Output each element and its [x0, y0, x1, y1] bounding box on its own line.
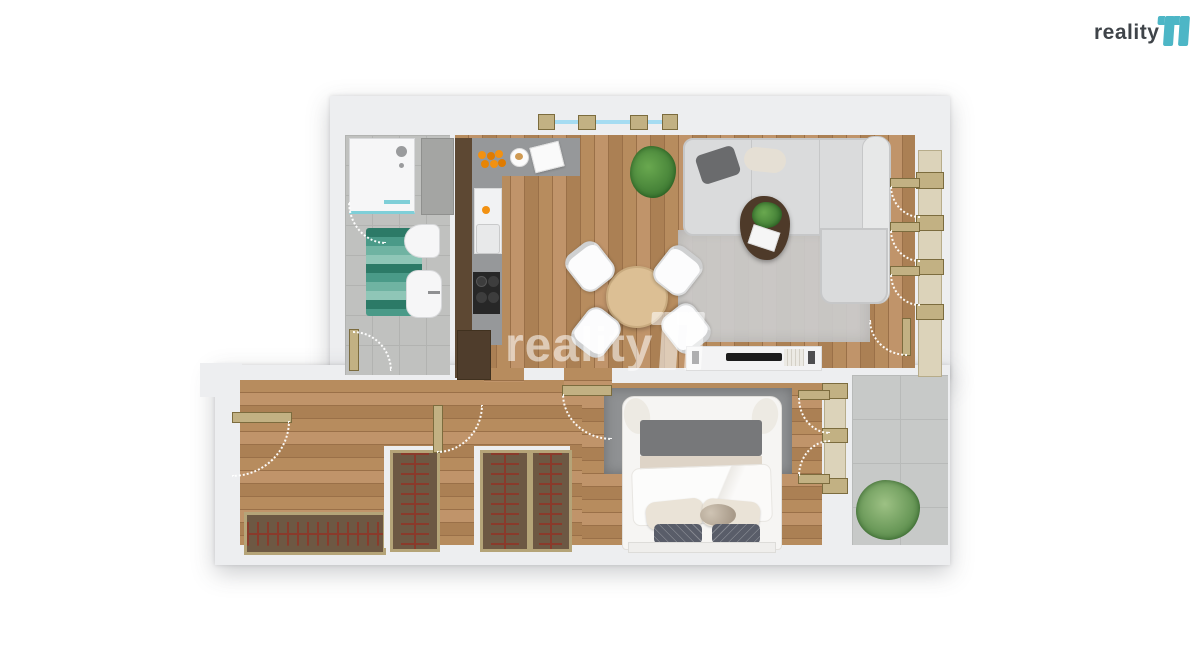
brand-logo-text: reality: [1094, 22, 1159, 43]
facade-frame-block: [916, 215, 944, 231]
bedroom-doorway-threshold: [564, 368, 612, 385]
facade-frame-block: [916, 259, 944, 275]
window-frame-block: [538, 114, 555, 130]
window-frame-block: [662, 114, 678, 130]
bed-headboard: [628, 542, 776, 553]
toilet: [404, 224, 440, 258]
built-in-wardrobe: [480, 450, 530, 552]
window-glass: [542, 120, 672, 124]
bed-accent-pillow: [712, 524, 760, 544]
brand-logo-mark-bar-2: [1178, 16, 1190, 46]
tv-icon: [726, 353, 782, 361]
kitchen-sink: [476, 224, 500, 254]
facade-frame-block: [916, 172, 944, 189]
wall-step-left: [200, 363, 242, 397]
floorplan-canvas: reality reality: [0, 0, 1200, 658]
fruit-bowl: [478, 151, 486, 159]
brand-logo: reality: [1094, 16, 1189, 46]
speaker-icon: [692, 351, 699, 364]
built-in-wardrobe: [390, 450, 440, 552]
fruit-on-counter: [482, 206, 490, 214]
bed-accent-pillow: [654, 524, 702, 544]
kitchen-lower-cabinet: [457, 330, 491, 380]
low-wardrobe: [244, 512, 386, 555]
croissant-icon: [515, 153, 523, 160]
bathroom-sink: [406, 270, 442, 318]
window-frame-block: [578, 115, 596, 130]
speaker-icon: [808, 351, 815, 364]
duct-shaft: [421, 138, 454, 215]
burner-icon: [476, 276, 487, 287]
cat: [700, 504, 736, 526]
faucet-icon: [428, 291, 440, 294]
shower-glass: [384, 200, 410, 204]
bed-gray-band: [640, 420, 762, 456]
sideboard-books: [784, 349, 804, 366]
facade-frame-block: [916, 304, 944, 320]
sofa-chaise: [820, 228, 888, 304]
shower-head-icon: [396, 146, 407, 157]
built-in-wardrobe: [530, 450, 572, 552]
window-frame-block: [630, 115, 648, 130]
